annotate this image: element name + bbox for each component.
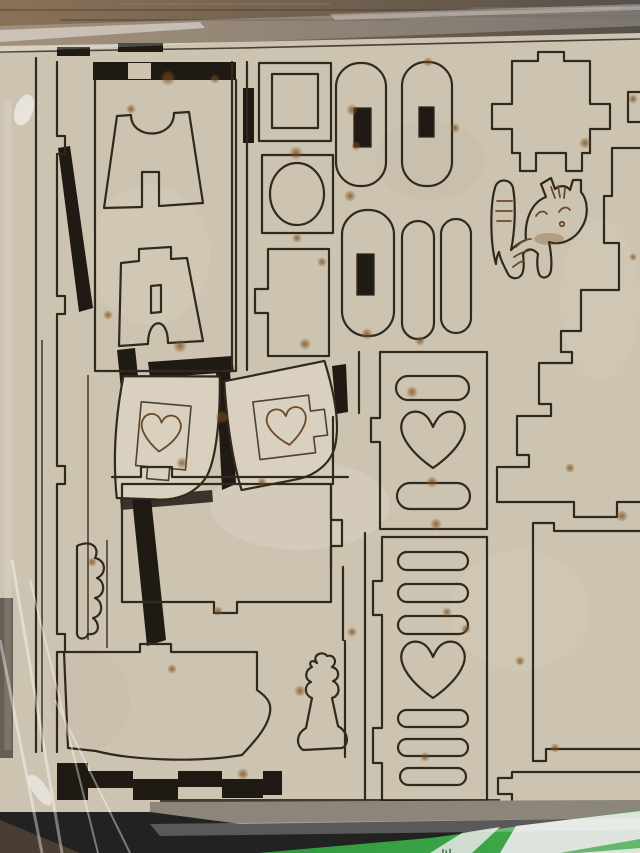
photo-laser-cut-kit: ЗЄ ІИ xyxy=(0,0,640,853)
label-text: ЗЄ ІИ xyxy=(440,848,454,853)
cat-chin-shading xyxy=(534,233,564,245)
scene-svg: ЗЄ ІИ xyxy=(0,0,640,853)
